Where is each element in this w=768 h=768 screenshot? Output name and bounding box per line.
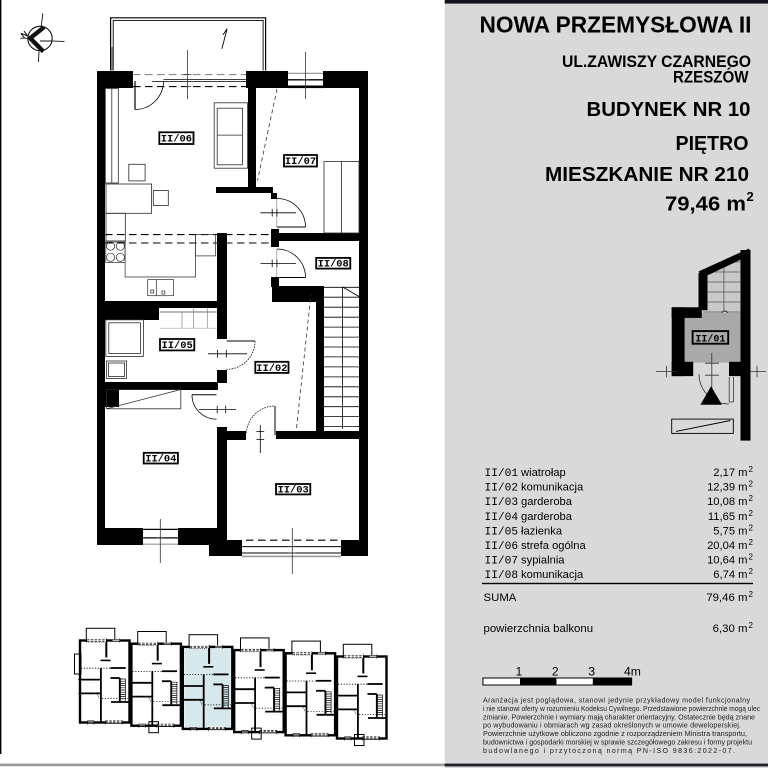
svg-text:MIESZKANIE NR 210: MIESZKANIE NR 210	[545, 163, 749, 186]
svg-text:strefa ogólna: strefa ogólna	[521, 540, 586, 552]
svg-text:10,08 m: 10,08 m	[707, 496, 747, 508]
svg-text:2: 2	[749, 480, 754, 489]
svg-text:budownictwa i gospodarki morsk: budownictwa i gospodarki morskiej w spra…	[483, 739, 752, 747]
svg-text:2: 2	[749, 621, 754, 630]
svg-text:1: 1	[516, 665, 523, 679]
svg-text:6,74 m: 6,74 m	[713, 569, 747, 581]
svg-text:NOWA PRZEMYSŁOWA II: NOWA PRZEMYSŁOWA II	[480, 12, 752, 38]
svg-text:2: 2	[749, 567, 754, 576]
svg-text:komunikacja: komunikacja	[521, 482, 584, 494]
svg-text:II/03: II/03	[485, 497, 519, 509]
svg-text:20,04 m: 20,04 m	[707, 540, 747, 552]
svg-text:powierzchnia balkonu: powierzchnia balkonu	[484, 623, 594, 635]
svg-text:3: 3	[588, 665, 595, 679]
svg-text:II/04: II/04	[145, 454, 176, 466]
svg-text:2: 2	[749, 465, 754, 474]
svg-text:2: 2	[747, 189, 754, 204]
svg-text:II/08: II/08	[318, 259, 349, 271]
svg-text:10,64 m: 10,64 m	[707, 555, 747, 567]
svg-text:2: 2	[749, 538, 754, 547]
svg-text:i nie stanowi oferty w rozumie: i nie stanowi oferty w rozumieniu Kodeks…	[483, 705, 760, 713]
svg-text:II/04: II/04	[485, 512, 519, 524]
svg-text:2: 2	[552, 665, 559, 679]
svg-text:BUDYNEK NR 10: BUDYNEK NR 10	[587, 98, 751, 121]
svg-text:II/08: II/08	[485, 570, 519, 582]
svg-text:II/02: II/02	[485, 483, 519, 495]
svg-text:II/05: II/05	[162, 340, 193, 352]
svg-text:79,46 m: 79,46 m	[665, 193, 746, 216]
svg-text:budowlanego i przytoczoną norm: budowlanego i przytoczoną normą PN-ISO 9…	[483, 747, 735, 755]
svg-text:po wybudowaniu i obmiarach wg: po wybudowaniu i obmiarach wg zasad okre…	[483, 722, 741, 730]
svg-text:komunikacja: komunikacja	[521, 569, 584, 581]
svg-text:zmianie. Powierzchnie i wymiar: zmianie. Powierzchnie i wymiary mają cha…	[483, 713, 755, 721]
svg-text:2: 2	[749, 523, 754, 532]
svg-text:11,65 m: 11,65 m	[708, 511, 748, 523]
svg-text:2: 2	[749, 553, 754, 562]
svg-text:II/06: II/06	[485, 541, 519, 553]
svg-text:II/02: II/02	[256, 363, 287, 375]
svg-text:12,39 m: 12,39 m	[707, 482, 747, 494]
svg-text:II/05: II/05	[485, 526, 519, 538]
svg-text:79,46 m: 79,46 m	[706, 592, 747, 604]
svg-text:6,30 m: 6,30 m	[713, 623, 748, 635]
svg-text:2,17 m: 2,17 m	[713, 467, 747, 479]
svg-text:II/03: II/03	[278, 485, 309, 497]
svg-text:5,75 m: 5,75 m	[713, 525, 747, 537]
svg-text:wiatrołap: wiatrołap	[520, 467, 566, 479]
svg-text:Powierzchnie użytkowe obliczon: Powierzchnie użytkowe obliczono zgodnie …	[483, 730, 747, 738]
svg-text:SUMA: SUMA	[484, 592, 517, 604]
svg-text:garderoba: garderoba	[521, 511, 573, 523]
svg-text:PIĘTRO: PIĘTRO	[676, 132, 749, 155]
svg-text:II/01: II/01	[695, 333, 725, 345]
svg-text:II/06: II/06	[161, 134, 192, 146]
svg-text:2: 2	[749, 590, 754, 599]
svg-text:garderoba: garderoba	[521, 496, 573, 508]
svg-text:II/07: II/07	[285, 156, 316, 168]
svg-text:II/07: II/07	[485, 556, 519, 568]
svg-text:II/01: II/01	[485, 468, 519, 480]
svg-text:2: 2	[749, 509, 754, 518]
svg-text:łazienka: łazienka	[521, 525, 563, 537]
svg-text:2: 2	[749, 494, 754, 503]
svg-text:Aranżacja jest poglądowa, stan: Aranżacja jest poglądowa, stanowi jedyni…	[483, 697, 750, 705]
svg-text:RZESZÓW: RZESZÓW	[673, 68, 749, 87]
svg-text:sypialnia: sypialnia	[521, 555, 565, 567]
svg-text:4m: 4m	[624, 665, 641, 679]
